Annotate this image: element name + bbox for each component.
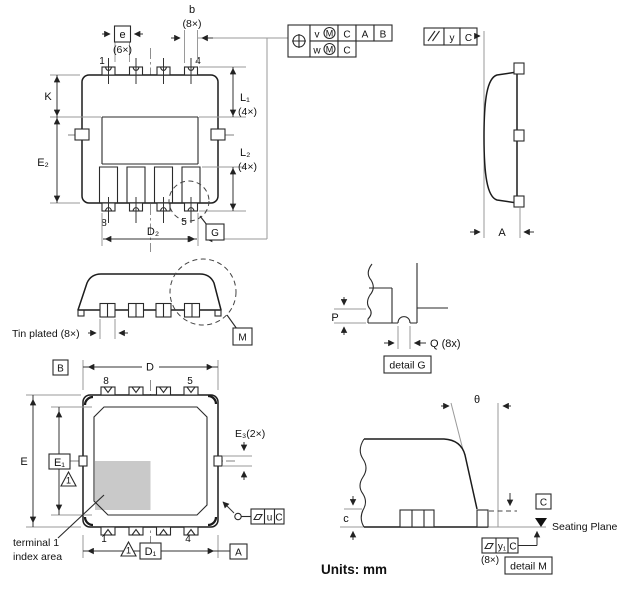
svg-text:E: E bbox=[20, 456, 27, 468]
units-label: Units: mm bbox=[321, 562, 387, 577]
svg-text:B: B bbox=[380, 30, 387, 41]
end-stub bbox=[78, 310, 84, 316]
svg-text:e: e bbox=[119, 29, 125, 41]
svg-text:D₂: D₂ bbox=[147, 226, 159, 238]
detail-g-view: P Q (8x) detail G bbox=[331, 263, 460, 373]
svg-text:(4×): (4×) bbox=[238, 161, 257, 173]
svg-text:1: 1 bbox=[126, 546, 131, 556]
svg-text:M: M bbox=[326, 29, 334, 39]
svg-text:y: y bbox=[450, 33, 455, 44]
svg-text:Seating Plane: Seating Plane bbox=[552, 521, 618, 533]
side-view: A bbox=[470, 31, 534, 239]
pin-number: 4 bbox=[185, 534, 191, 545]
dimension-q: Q (8x) bbox=[384, 326, 461, 350]
detail-m-view: θ c C Seating Plane y₁ C (8×) detail M bbox=[340, 394, 618, 574]
pin-number: 4 bbox=[195, 56, 201, 67]
side-elevation: Tin plated (8×) M bbox=[12, 259, 252, 345]
svg-text:detail G: detail G bbox=[389, 360, 425, 372]
corner-terminal bbox=[477, 510, 488, 527]
leader-circle bbox=[235, 513, 241, 519]
flatness-u-frame: u C bbox=[223, 502, 284, 524]
side-tab-left bbox=[75, 129, 89, 140]
dimension-e3: E₃(2×) bbox=[223, 428, 265, 480]
svg-text:1: 1 bbox=[66, 476, 71, 486]
svg-text:M: M bbox=[238, 333, 246, 344]
tin-plated-callout: Tin plated (8×) bbox=[12, 319, 128, 340]
terminal-bump bbox=[398, 317, 410, 323]
svg-text:G: G bbox=[211, 228, 219, 239]
side-tab-right bbox=[211, 129, 225, 140]
svg-text:D: D bbox=[146, 362, 154, 374]
note-1-triangle: 1 bbox=[61, 472, 76, 486]
package-outline-drawing-page: 1 4 8 5 b (8×) e (6×) K bbox=[0, 0, 624, 590]
pin-number: 8 bbox=[103, 376, 109, 387]
pin-number: 5 bbox=[181, 217, 187, 228]
bottom-terminals bbox=[101, 527, 198, 535]
dimension-b: b (8×) bbox=[171, 4, 288, 63]
svg-text:P: P bbox=[331, 312, 338, 324]
dimension-e2: E₂ bbox=[37, 117, 57, 203]
dimension-e: e (6×) bbox=[102, 26, 143, 62]
svg-text:w: w bbox=[312, 46, 321, 57]
parallelism-tolerance-frame: y C bbox=[424, 28, 480, 45]
svg-text:(6×): (6×) bbox=[113, 44, 132, 56]
svg-text:D₁: D₁ bbox=[145, 546, 157, 558]
svg-text:(4×): (4×) bbox=[238, 106, 257, 118]
svg-text:L₁: L₁ bbox=[240, 92, 250, 104]
end-stub bbox=[215, 310, 221, 316]
position-tolerance-frame: v M C A B w M C bbox=[288, 25, 392, 57]
pin-number: 1 bbox=[101, 534, 107, 545]
svg-text:index area: index area bbox=[13, 551, 62, 563]
svg-text:E₁: E₁ bbox=[54, 457, 65, 469]
side-tab-left bbox=[79, 456, 87, 466]
svg-text:B: B bbox=[57, 364, 64, 375]
svg-text:(8×): (8×) bbox=[481, 555, 499, 566]
svg-text:(8×): (8×) bbox=[183, 18, 202, 30]
dimension-d1: 1 D₁ A bbox=[83, 535, 247, 559]
seating-plane-datum-icon bbox=[535, 518, 547, 527]
svg-text:Q (8x): Q (8x) bbox=[430, 338, 461, 350]
svg-text:A: A bbox=[235, 548, 242, 559]
note-1-triangle: 1 bbox=[121, 542, 136, 556]
package-outline-drawing: 1 4 8 5 b (8×) e (6×) K bbox=[0, 0, 624, 590]
terminal-block bbox=[400, 510, 434, 527]
top-terminals bbox=[101, 387, 198, 395]
svg-text:A: A bbox=[362, 30, 369, 41]
lead-tab bbox=[514, 63, 524, 74]
terminal1-index-area bbox=[95, 461, 151, 510]
dimension-a: A bbox=[470, 227, 534, 239]
svg-text:Tin plated (8×): Tin plated (8×) bbox=[12, 328, 80, 340]
pin-number: 5 bbox=[187, 376, 193, 387]
svg-text:θ: θ bbox=[474, 394, 480, 406]
svg-text:v: v bbox=[315, 30, 320, 41]
svg-text:L₂: L₂ bbox=[240, 147, 250, 159]
svg-text:u: u bbox=[267, 513, 273, 524]
pin-number: 1 bbox=[99, 56, 105, 67]
break-line bbox=[360, 439, 366, 527]
lead-tab bbox=[514, 196, 524, 207]
svg-text:C: C bbox=[343, 30, 350, 41]
dimension-c: c bbox=[343, 496, 353, 540]
svg-text:A: A bbox=[498, 227, 506, 239]
svg-text:C: C bbox=[275, 513, 282, 524]
svg-text:terminal 1: terminal 1 bbox=[13, 537, 59, 549]
svg-text:c: c bbox=[343, 513, 349, 525]
side-tab-right bbox=[214, 456, 222, 466]
lead-tab bbox=[514, 130, 524, 141]
svg-text:C: C bbox=[343, 46, 350, 57]
svg-text:E₂: E₂ bbox=[37, 157, 49, 169]
svg-text:detail M: detail M bbox=[510, 561, 547, 573]
package-body-side-view bbox=[484, 72, 517, 203]
bottom-view: 8 5 1 4 B D E bbox=[13, 358, 284, 563]
svg-text:C: C bbox=[540, 498, 547, 509]
svg-text:b: b bbox=[189, 4, 195, 16]
svg-text:K: K bbox=[44, 91, 52, 103]
dimension-p: P bbox=[331, 297, 366, 335]
svg-text:y₁: y₁ bbox=[498, 542, 507, 553]
top-view: 1 4 8 5 b (8×) e (6×) K bbox=[37, 4, 288, 252]
svg-text:E₃(2×): E₃(2×) bbox=[235, 428, 265, 440]
svg-text:C: C bbox=[509, 542, 516, 553]
svg-text:M: M bbox=[326, 45, 334, 55]
svg-text:C: C bbox=[465, 33, 472, 44]
break-line bbox=[368, 264, 374, 323]
